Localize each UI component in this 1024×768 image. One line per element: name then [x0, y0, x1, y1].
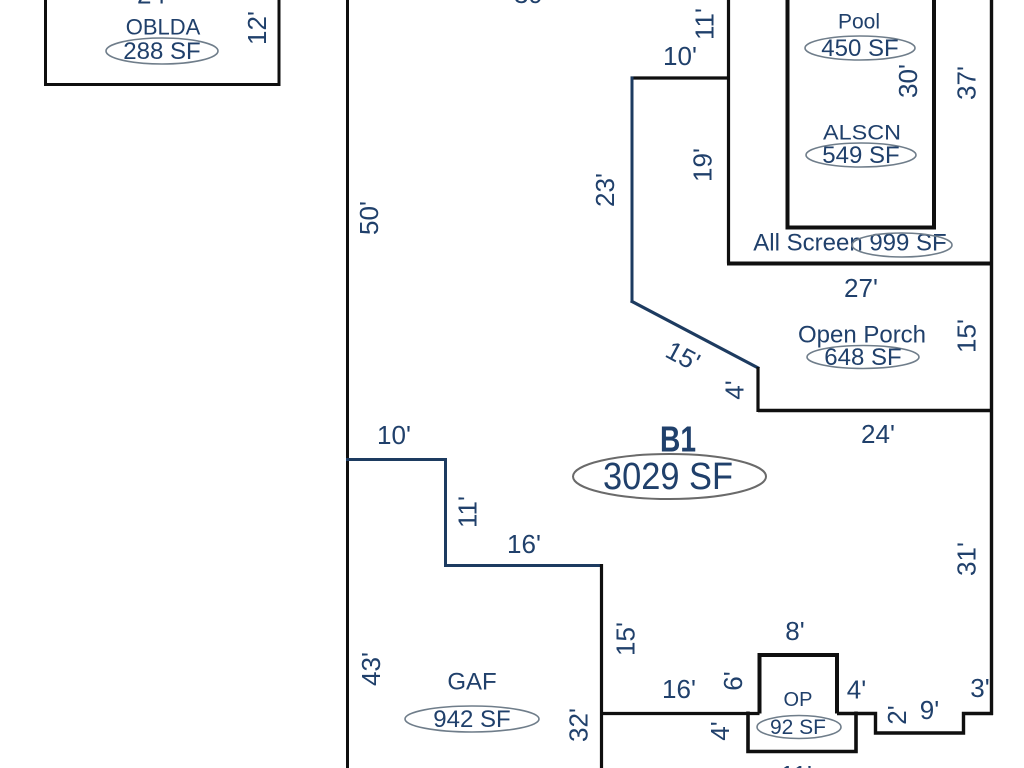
svg-text:OBLDA: OBLDA — [126, 15, 201, 40]
svg-text:3029 SF: 3029 SF — [603, 456, 733, 498]
svg-text:9': 9' — [920, 695, 939, 725]
svg-text:37': 37' — [952, 66, 982, 100]
svg-text:43': 43' — [356, 652, 386, 686]
svg-text:8': 8' — [785, 616, 804, 646]
svg-text:16': 16' — [662, 674, 696, 704]
svg-text:2': 2' — [882, 705, 912, 724]
svg-text:942 SF: 942 SF — [433, 706, 510, 733]
svg-text:12': 12' — [242, 11, 272, 45]
svg-text:6': 6' — [718, 671, 748, 690]
svg-text:11': 11' — [780, 760, 812, 768]
svg-text:24': 24' — [137, 0, 171, 10]
svg-text:10': 10' — [377, 420, 411, 450]
svg-text:92 SF: 92 SF — [770, 716, 826, 739]
svg-text:OP: OP — [784, 689, 813, 711]
svg-text:50': 50' — [354, 201, 384, 235]
svg-text:11': 11' — [690, 8, 720, 40]
svg-text:27': 27' — [844, 273, 878, 303]
svg-text:15': 15' — [611, 622, 641, 656]
svg-text:4': 4' — [705, 721, 735, 740]
svg-text:15': 15' — [952, 319, 982, 353]
svg-text:3': 3' — [970, 673, 989, 703]
svg-text:4': 4' — [847, 675, 866, 705]
svg-text:19': 19' — [688, 148, 718, 182]
svg-text:648 SF: 648 SF — [824, 344, 901, 371]
svg-text:23': 23' — [590, 173, 620, 207]
svg-text:11': 11' — [453, 496, 483, 528]
svg-text:4': 4' — [720, 380, 750, 399]
svg-text:Pool: Pool — [838, 11, 880, 34]
svg-text:30': 30' — [893, 64, 923, 98]
svg-text:39': 39' — [514, 0, 548, 9]
svg-text:GAF: GAF — [447, 669, 496, 696]
svg-text:549 SF: 549 SF — [822, 142, 899, 169]
svg-text:31': 31' — [952, 542, 982, 576]
svg-text:24': 24' — [861, 419, 895, 449]
svg-text:10': 10' — [663, 41, 697, 71]
svg-text:16': 16' — [507, 529, 541, 559]
svg-text:32': 32' — [564, 708, 594, 742]
svg-text:450 SF: 450 SF — [821, 35, 898, 62]
svg-text:288 SF: 288 SF — [123, 38, 200, 65]
